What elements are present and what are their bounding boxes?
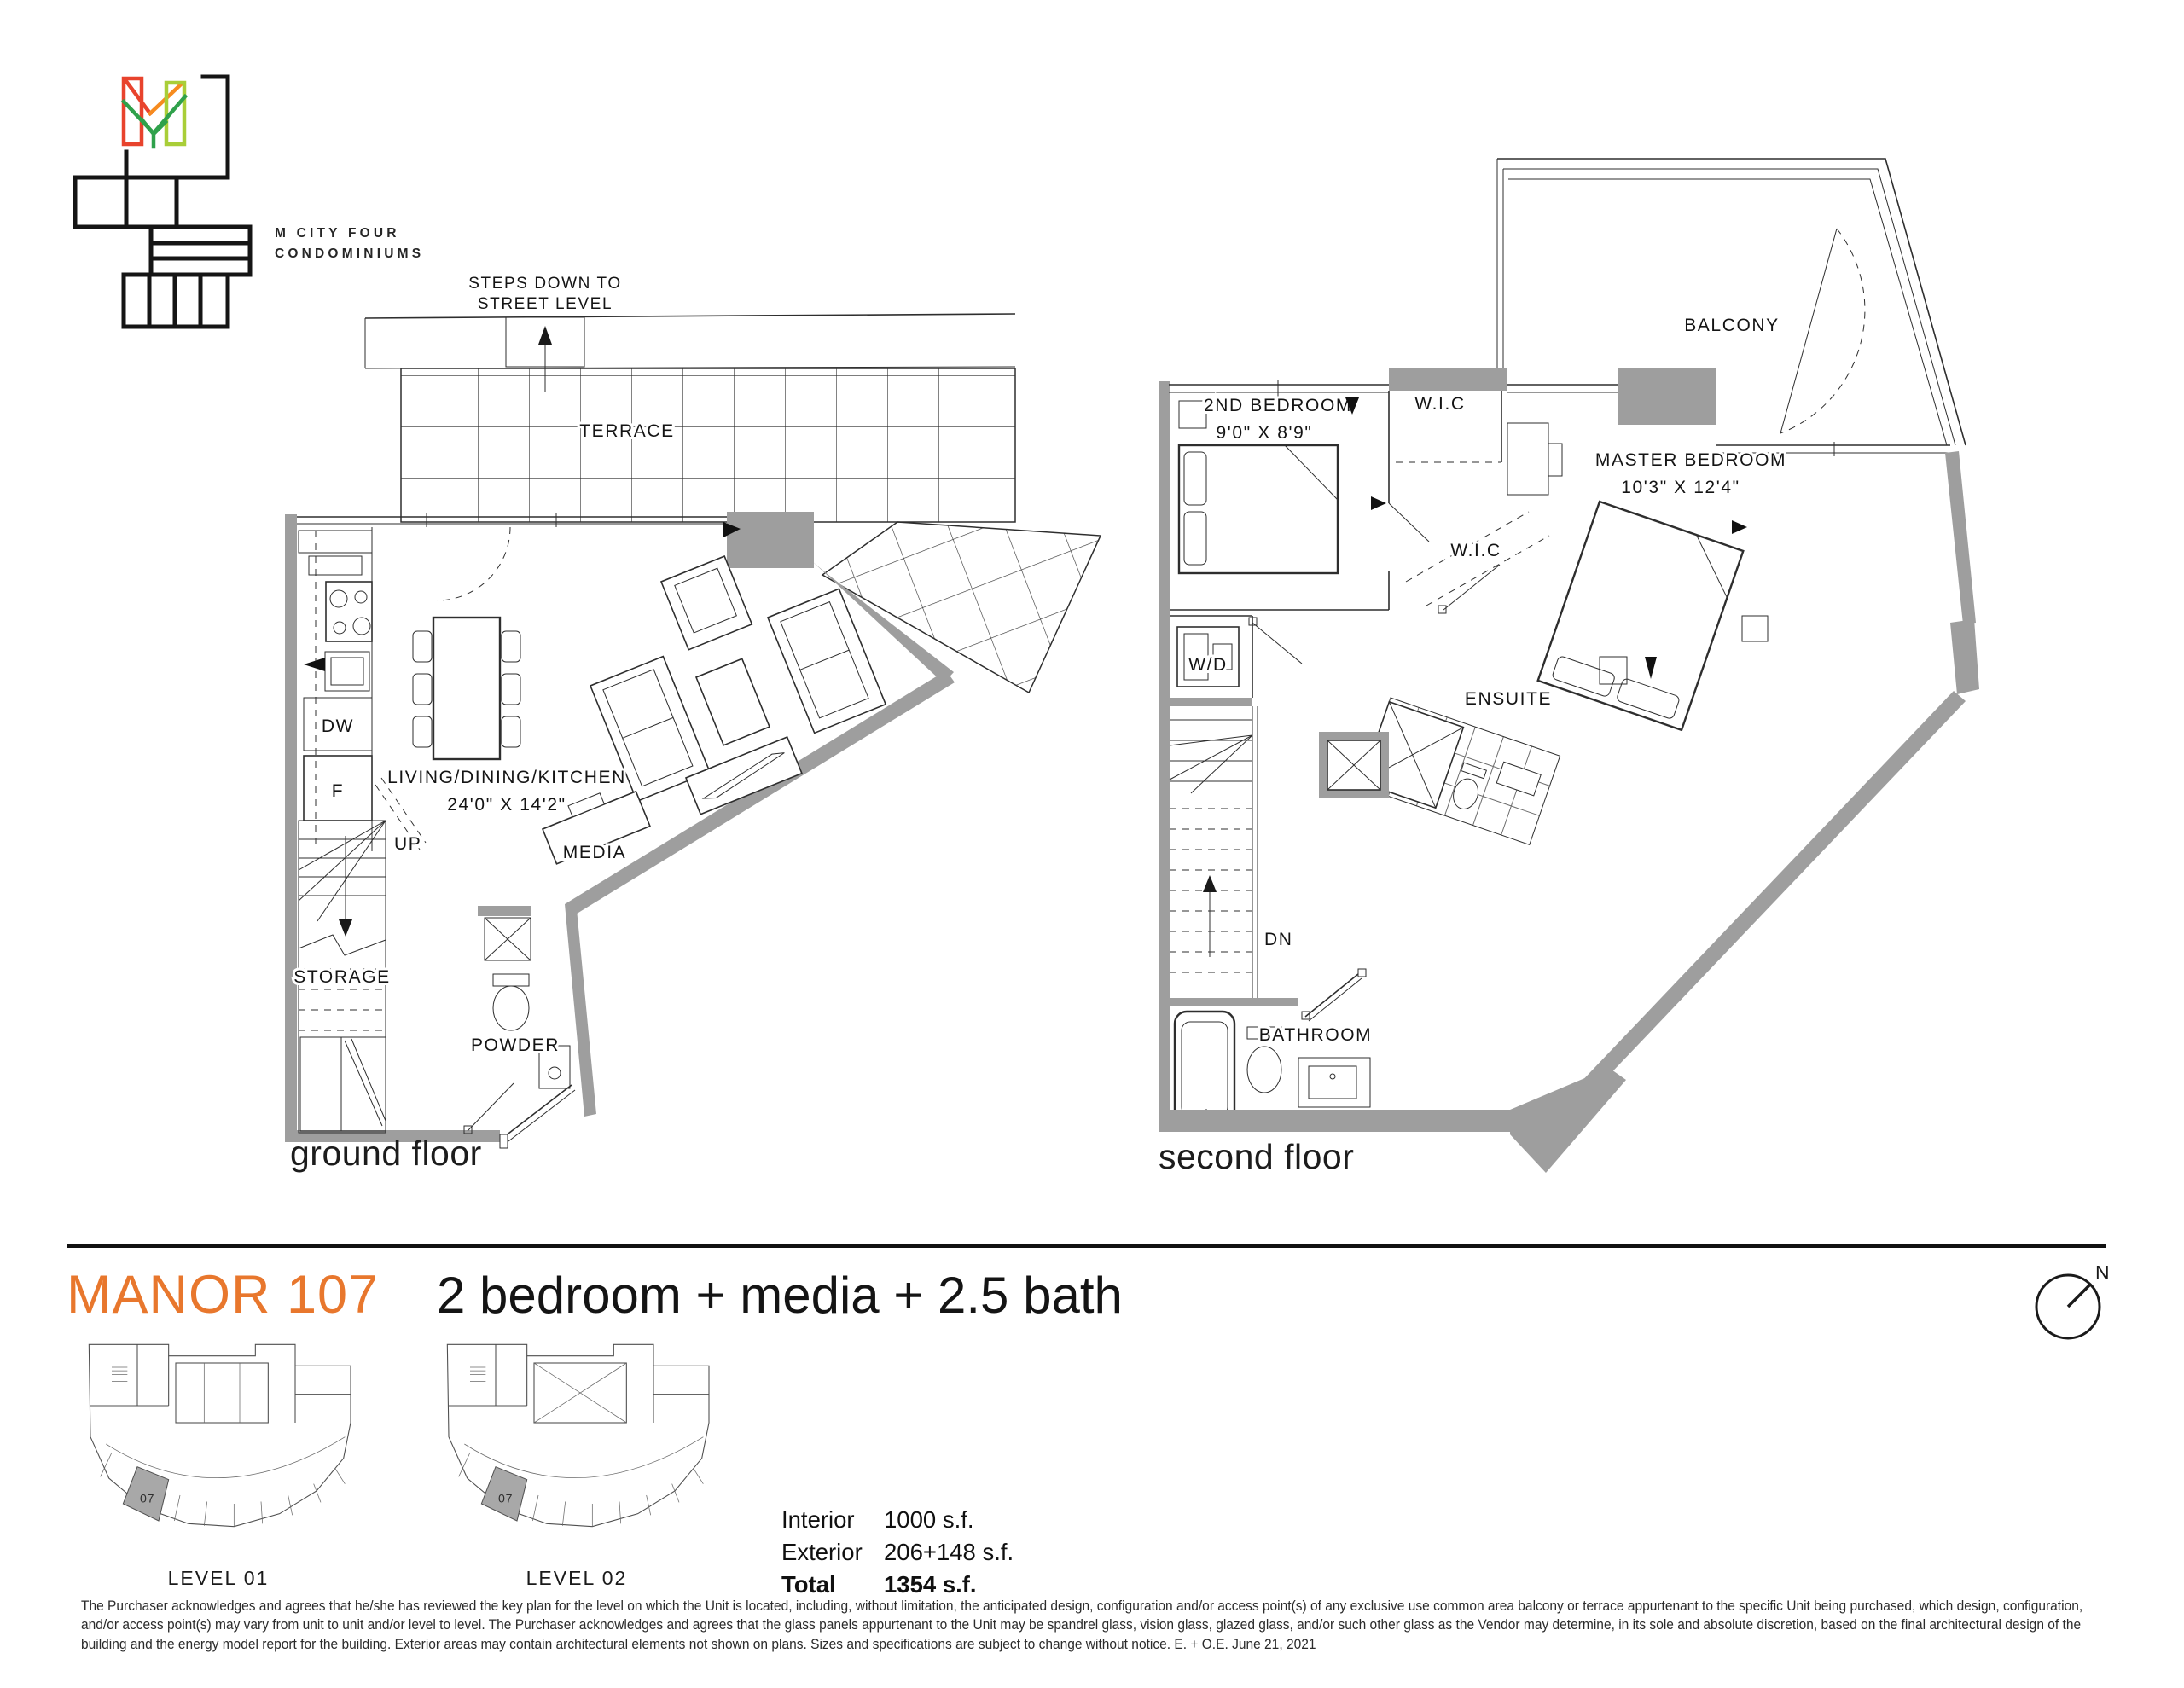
second-floor-plan: BALCONY 2ND BEDROOM 9'0" X 8'9" W.I.C W.…	[1135, 145, 1979, 1194]
wic-upper-label: W.I.C	[1414, 394, 1465, 414]
stair-arrow-icon	[339, 919, 352, 937]
wic-lower-label: W.I.C	[1450, 541, 1501, 560]
brand-line2: CONDOMINIUMS	[275, 244, 424, 264]
ensuite-label: ENSUITE	[1465, 689, 1552, 709]
legal-disclaimer: The Purchaser acknowledges and agrees th…	[81, 1597, 2103, 1654]
area-value: 1354 s.f.	[884, 1571, 977, 1598]
keyplan-level-01: 07 LEVEL 01	[44, 1337, 392, 1590]
balcony-label: BALCONY	[1684, 316, 1780, 335]
second-bedroom-label: 2ND BEDROOM	[1204, 396, 1352, 415]
area-row-interior: Interior 1000 s.f.	[781, 1506, 1014, 1534]
coffee-table	[696, 658, 770, 745]
living-label: LIVING/DINING/KITCHEN	[387, 768, 626, 787]
marker-icon	[1371, 496, 1386, 510]
area-row-exterior: Exterior 206+148 s.f.	[781, 1539, 1014, 1566]
keyplan-unit-number: 07	[140, 1492, 154, 1505]
toilet	[1247, 1047, 1281, 1093]
keyplan-level-01-drawing: 07	[44, 1337, 392, 1551]
toilet	[493, 986, 529, 1030]
north-label: N	[2095, 1262, 2110, 1284]
fridge-label: F	[332, 781, 344, 801]
media-label: MEDIA	[563, 843, 627, 862]
keyplan-level-02-label: LEVEL 02	[403, 1567, 751, 1590]
bathroom-sink	[1298, 1058, 1370, 1107]
ground-floor-plan: STEPS DOWN TO STREET LEVEL TERRACE DW F	[171, 273, 1109, 1186]
bathroom-label: BATHROOM	[1259, 1025, 1373, 1045]
area-label: Exterior	[781, 1539, 884, 1566]
marker-icon	[304, 658, 325, 671]
area-label: Total	[781, 1571, 884, 1598]
bathtub	[1175, 1012, 1234, 1126]
keyplan-unit-number: 07	[498, 1492, 513, 1505]
brand-line1: M CITY FOUR	[275, 223, 424, 244]
steps-note-line1: STEPS DOWN TO	[468, 275, 622, 293]
dining-table	[433, 618, 500, 759]
ensuite-room	[1360, 698, 1560, 844]
living-dims: 24'0" X 14'2"	[447, 795, 566, 815]
second-bedroom-dims: 9'0" X 8'9"	[1217, 423, 1313, 443]
brand-name: M CITY FOUR CONDOMINIUMS	[275, 223, 424, 264]
terrace-label: TERRACE	[579, 421, 675, 441]
toilet-tank	[493, 974, 529, 986]
terrace-tiles	[401, 368, 1015, 522]
area-value: 1000 s.f.	[884, 1506, 974, 1534]
master-bed	[1538, 502, 1744, 730]
unit-name: MANOR 107	[67, 1264, 379, 1325]
north-compass-icon: N	[2024, 1256, 2122, 1354]
ground-floor-caption: ground floor	[290, 1134, 482, 1173]
stove	[326, 582, 372, 641]
stair-arrow-icon	[1203, 875, 1217, 892]
master-bedroom-dims: 10'3" X 12'4"	[1621, 478, 1740, 497]
storage-label: STORAGE	[293, 967, 391, 987]
divider-rule	[67, 1244, 2106, 1248]
up-label: UP	[394, 834, 421, 854]
washer-dryer-label: W/D	[1188, 655, 1228, 675]
steps-note-line2: STREET LEVEL	[478, 295, 613, 313]
area-value: 206+148 s.f.	[884, 1539, 1014, 1566]
keyplan-level-02: 07 LEVEL 02	[403, 1337, 751, 1590]
keyplan-level-01-label: LEVEL 01	[44, 1567, 392, 1590]
armchair	[661, 556, 752, 650]
unit-description: 2 bedroom + media + 2.5 bath	[437, 1266, 1123, 1325]
steps-arrow-icon	[538, 326, 552, 345]
marker-icon	[1732, 520, 1747, 534]
master-bedroom-label: MASTER BEDROOM	[1595, 450, 1786, 470]
dresser	[1507, 423, 1548, 495]
powder-label: POWDER	[471, 1035, 560, 1055]
second-floor-caption: second floor	[1159, 1137, 1354, 1176]
down-label: DN	[1264, 930, 1293, 949]
area-table: Interior 1000 s.f. Exterior 206+148 s.f.…	[781, 1506, 1014, 1604]
keyplan-level-02-drawing: 07	[403, 1337, 751, 1551]
floorplan-sheet: { "brand": {"line1": "M CITY FOUR", "lin…	[0, 0, 2184, 1688]
bed	[1179, 445, 1338, 573]
dishwasher-label: DW	[322, 716, 354, 736]
area-label: Interior	[781, 1506, 884, 1534]
area-row-total: Total 1354 s.f.	[781, 1571, 1014, 1598]
